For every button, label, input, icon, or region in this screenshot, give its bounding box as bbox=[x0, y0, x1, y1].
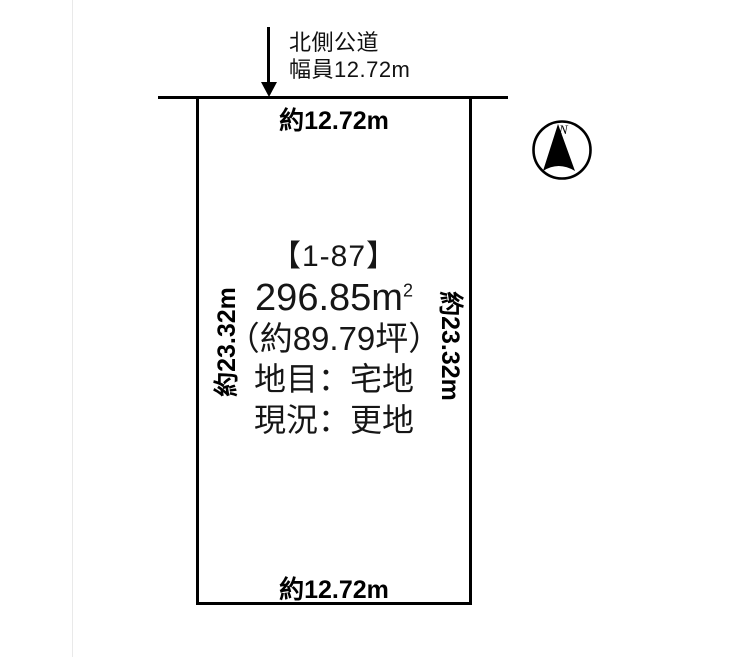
parcel-area: 296.85m2 bbox=[197, 278, 471, 319]
compass-north-label: N bbox=[559, 122, 568, 138]
road-name-label: 北側公道 bbox=[289, 29, 410, 56]
land-category: 地目：宅地 bbox=[197, 359, 471, 400]
down-arrow-head-icon bbox=[261, 82, 277, 97]
parcel-area-tsubo: （約89.79坪） bbox=[197, 319, 471, 359]
page-edge-line bbox=[72, 0, 73, 657]
parcel-id: 【1-87】 bbox=[197, 236, 471, 278]
road-annotation: 北側公道 幅員12.72m bbox=[289, 29, 410, 83]
road-width-label: 幅員12.72m bbox=[289, 56, 410, 83]
land-plot-diagram: 北側公道 幅員12.72m 約12.72m 約12.72m 約23.32m 約2… bbox=[0, 0, 740, 657]
current-state: 現況：更地 bbox=[197, 400, 471, 441]
plot-info: 【1-87】 296.85m2 （約89.79坪） 地目：宅地 現況：更地 bbox=[197, 236, 471, 441]
dimension-bottom: 約12.72m bbox=[197, 570, 471, 606]
parcel-area-value: 296.85m bbox=[255, 277, 403, 319]
dimension-top: 約12.72m bbox=[197, 101, 471, 137]
down-arrow-icon bbox=[267, 27, 270, 84]
parcel-area-superscript: 2 bbox=[403, 280, 413, 300]
